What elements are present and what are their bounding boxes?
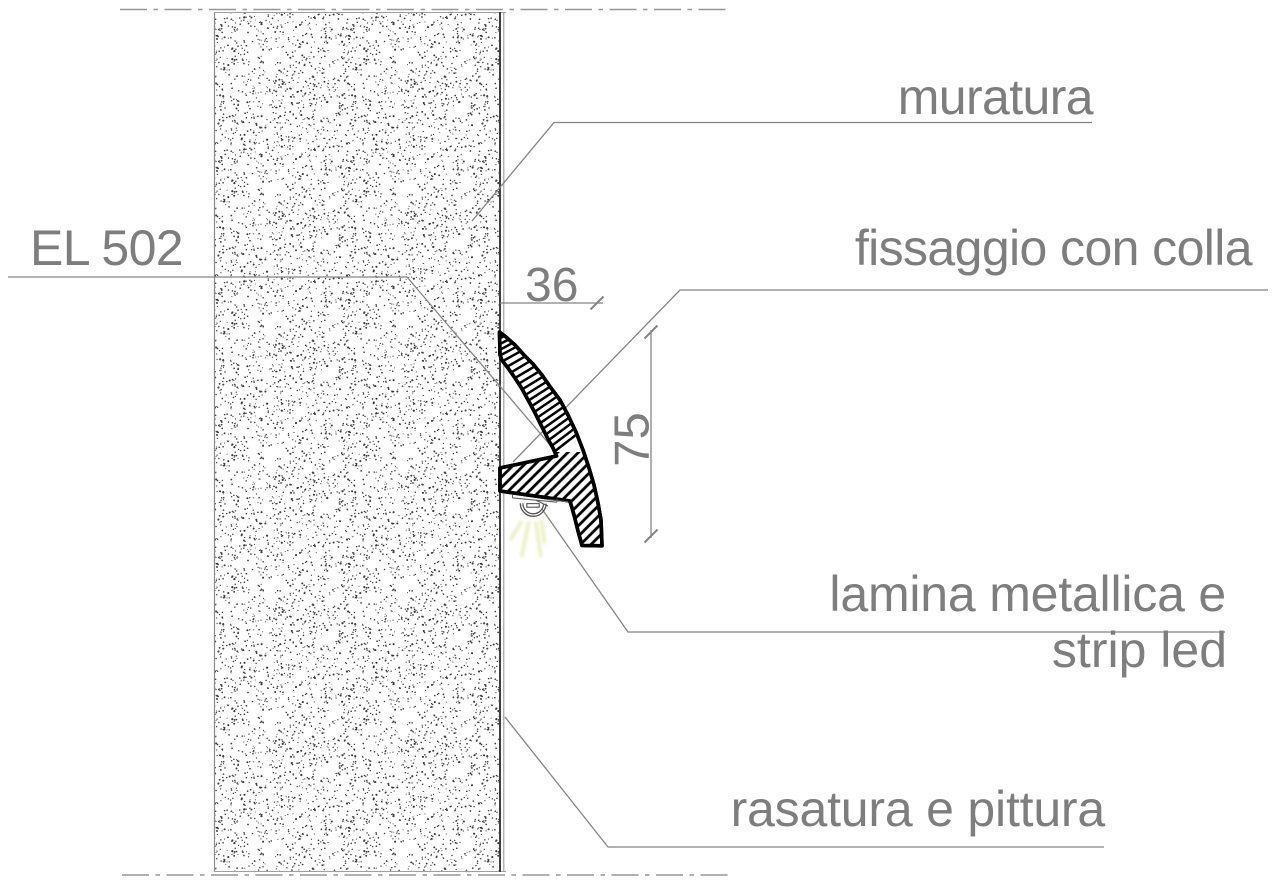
svg-text:EL 502: EL 502 bbox=[30, 220, 183, 276]
svg-text:lamina metallica e: lamina metallica e bbox=[829, 566, 1226, 622]
svg-text:muratura: muratura bbox=[898, 69, 1094, 125]
svg-text:fissaggio con colla: fissaggio con colla bbox=[855, 220, 1253, 276]
svg-text:75: 75 bbox=[606, 412, 660, 467]
svg-text:strip led: strip led bbox=[1052, 622, 1227, 678]
svg-text:36: 36 bbox=[525, 259, 578, 312]
svg-text:rasatura e pittura: rasatura e pittura bbox=[731, 781, 1106, 837]
